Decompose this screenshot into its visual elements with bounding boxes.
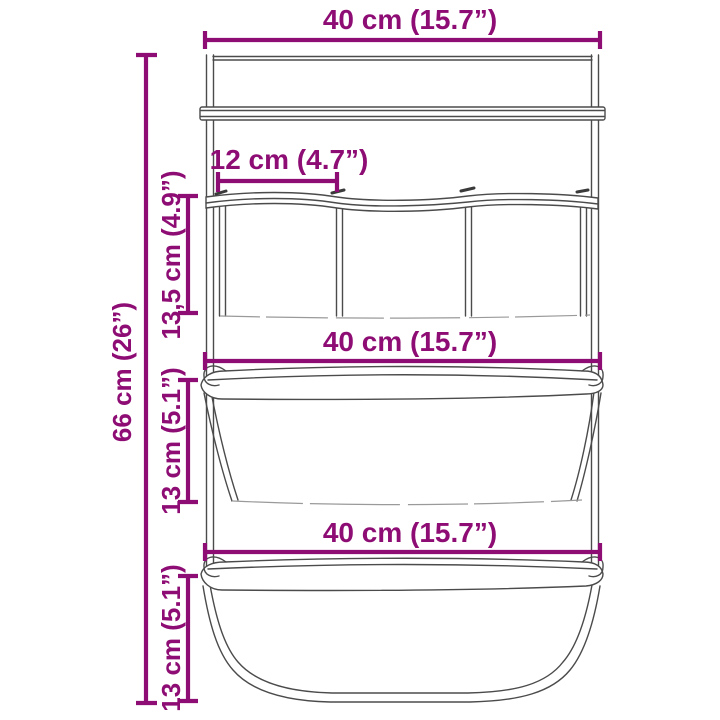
dim-middle-basket-height: 13 cm (5.1”) [156, 367, 198, 514]
middle-basket-bottom-seam [233, 500, 582, 505]
dimension-label-middle-basket-height: 13 cm (5.1”) [156, 367, 186, 514]
dimension-label-middle-width: 40 cm (15.7”) [323, 326, 497, 357]
middle-basket-rim [201, 367, 603, 400]
dimension-label-overall-height: 66 cm (26”) [107, 302, 137, 442]
pocket-dividers [220, 204, 587, 316]
dimension-label-pocket-width: 12 cm (4.7”) [210, 144, 369, 175]
dim-overall-height: 66 cm (26”) [107, 55, 157, 703]
dim-pocket-height: 13,5 cm (4.9”) [156, 170, 198, 339]
bottom-basket [201, 557, 603, 702]
dim-bottom-basket-height: 13 cm (5.1”) [156, 564, 198, 711]
top-edge [213, 57, 592, 61]
dim-top-width: 40 cm (15.7”) [205, 4, 600, 49]
bottom-basket-rim [201, 558, 603, 590]
dim-middle-width: 40 cm (15.7”) [205, 326, 600, 370]
dimension-label-pocket-height: 13,5 cm (4.9”) [156, 170, 186, 339]
pocket-top-hem [206, 193, 598, 212]
dimension-label-bottom-width: 40 cm (15.7”) [323, 517, 497, 548]
dimension-label-bottom-basket-height: 13 cm (5.1”) [156, 564, 186, 711]
middle-basket [201, 366, 603, 505]
dimension-label-top-width: 40 cm (15.7”) [323, 4, 497, 35]
dim-bottom-width: 40 cm (15.7”) [205, 517, 600, 561]
pocket-bottom-seam [220, 315, 590, 318]
side-rails [207, 55, 599, 567]
dim-pocket-width: 12 cm (4.7”) [210, 144, 369, 192]
diagram-svg: 40 cm (15.7”) 12 cm (4.7”) 13,5 cm (4.9”… [0, 0, 720, 720]
product-dimension-diagram: 40 cm (15.7”) 12 cm (4.7”) 13,5 cm (4.9”… [0, 0, 720, 720]
hanging-bar [200, 107, 605, 120]
